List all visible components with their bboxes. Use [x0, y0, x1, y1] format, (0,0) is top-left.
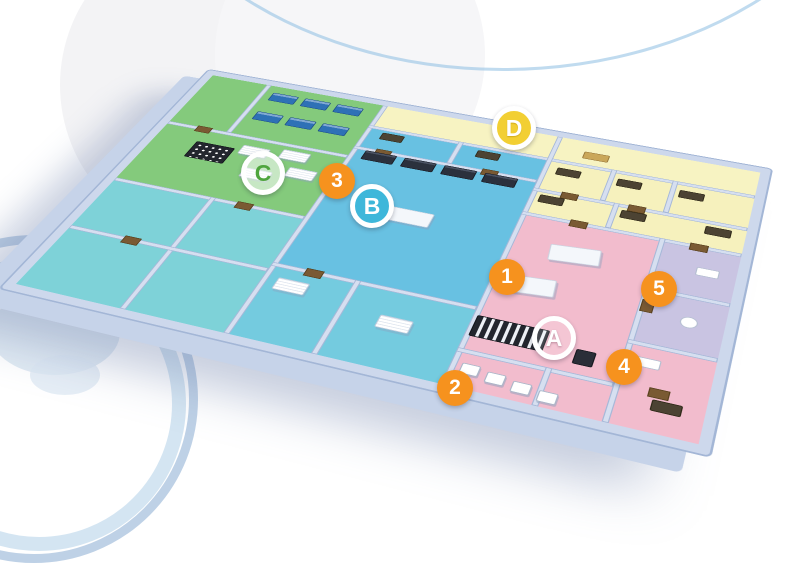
marker-zone-d[interactable]: D: [492, 106, 536, 150]
marker-zone-c-label: C: [255, 162, 272, 185]
marker-point-1[interactable]: 1: [489, 259, 525, 295]
marker-zone-d-label: D: [506, 117, 523, 140]
marker-point-4[interactable]: 4: [606, 349, 642, 385]
marker-point-3[interactable]: 3: [319, 163, 355, 199]
marker-zone-b-label: B: [364, 195, 381, 218]
marker-point-3-label: 3: [331, 169, 343, 193]
globe-continent-shape: [30, 355, 100, 395]
marker-zone-a-label: A: [546, 327, 563, 350]
marker-point-2[interactable]: 2: [437, 370, 473, 406]
marker-zone-a[interactable]: A: [532, 316, 576, 360]
marker-point-4-label: 4: [618, 355, 630, 379]
marker-point-5[interactable]: 5: [641, 271, 677, 307]
marker-point-1-label: 1: [501, 265, 513, 289]
marker-zone-b[interactable]: B: [350, 184, 394, 228]
marker-point-5-label: 5: [653, 277, 665, 301]
marker-zone-c[interactable]: C: [241, 151, 285, 195]
marker-point-2-label: 2: [449, 376, 461, 400]
